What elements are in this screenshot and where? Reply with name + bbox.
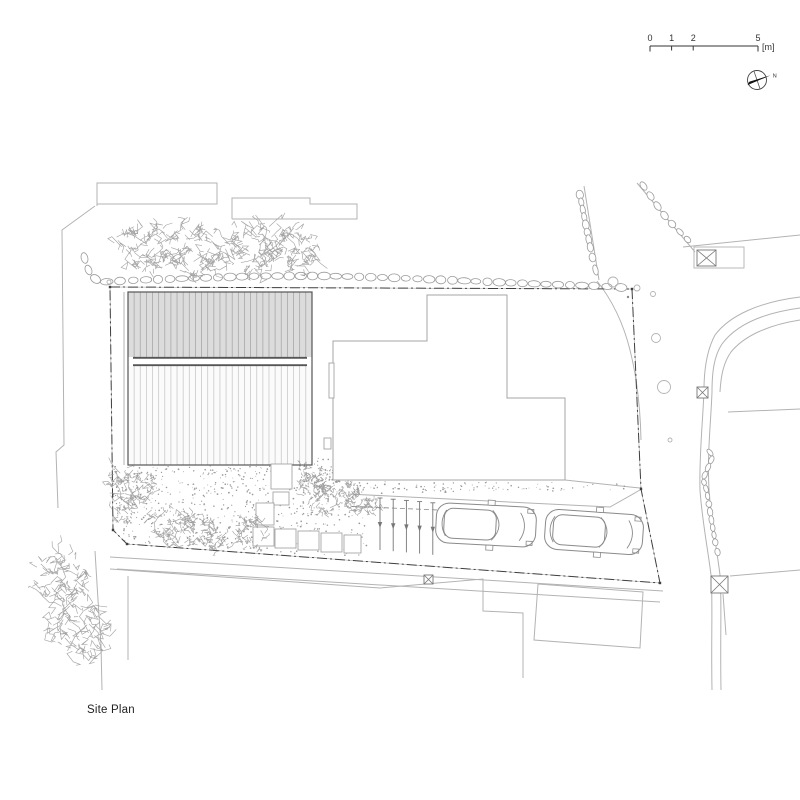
site-plan-svg: 0125[m]N: [0, 0, 800, 800]
scale-bar: 0125[m]: [647, 33, 774, 52]
tree: [29, 535, 92, 606]
scale-unit: [m]: [762, 42, 775, 52]
tree: [165, 217, 235, 283]
north-needle: [748, 75, 771, 85]
north-arrow: N: [748, 71, 777, 90]
scale-label: 5: [755, 33, 760, 43]
drawing-title: Site Plan: [87, 704, 135, 716]
drawing-sheet: 0125[m]N Site Plan: [0, 0, 800, 800]
tree: [264, 222, 328, 276]
main-building: [128, 292, 312, 465]
parked-cars: [435, 497, 645, 560]
scale-label: 0: [647, 33, 652, 43]
scale-label: 2: [691, 33, 696, 43]
tree: [215, 213, 286, 283]
north-label: N: [773, 73, 777, 79]
car: [543, 504, 644, 561]
tree: [173, 508, 217, 547]
car: [435, 497, 537, 552]
tree: [43, 595, 117, 666]
adjacent-building: [324, 295, 565, 480]
scale-label: 1: [669, 33, 674, 43]
